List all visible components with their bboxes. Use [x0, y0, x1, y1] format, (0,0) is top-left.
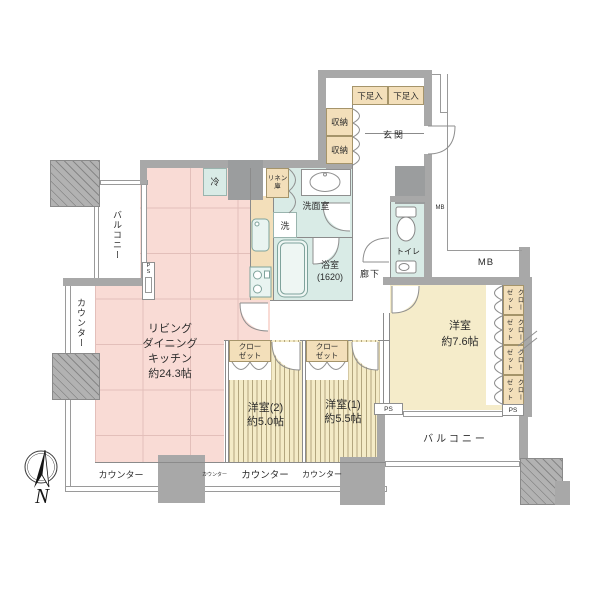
entrance-label: 玄関 [376, 128, 412, 141]
bath-label: 浴室 (1620) [303, 259, 357, 283]
kitchen-sink-icon [252, 219, 269, 251]
bedroom1-label: 洋室(1) 約5.5帖 [306, 398, 380, 426]
hall-label: 廊下 [356, 267, 384, 280]
counter-label: カウンター [241, 467, 289, 481]
refrigerator-label: 冷 [204, 175, 226, 188]
toilet-icon [396, 207, 416, 273]
ldk-label: リビング ダイニング キッチン 約24.3帖 [125, 322, 215, 382]
bedroom-main-label-line: 約7.6帖 [420, 334, 500, 350]
bedroom2-label-line: 約5.0帖 [229, 415, 302, 429]
compass-icon [25, 450, 57, 488]
fixtures-overlay [0, 0, 600, 600]
bedroom-main-label-line: 洋室 [420, 318, 500, 334]
counter-label: カウンター [96, 468, 146, 481]
floor-plan: 下足入 下足入 収納 収納 リネン 庫 洗 クロー ゼット クロー ゼット クロ… [0, 0, 600, 600]
stove-icon [250, 267, 271, 297]
bedroom-main-label: 洋室 約7.6帖 [420, 318, 500, 350]
ldk-label-line: ダイニング [125, 337, 215, 352]
bath-label-line: 浴室 [303, 259, 357, 271]
counter-label: カウンター [302, 469, 342, 480]
north-label: N [30, 484, 54, 509]
bath-label-line: (1620) [303, 271, 357, 283]
bedroom2-label: 洋室(2) 約5.0帖 [229, 401, 302, 429]
washbasin-icon [310, 173, 340, 192]
ldk-label-line: キッチン [125, 352, 215, 367]
break-marks [518, 331, 537, 353]
toilet-label: トイレ [394, 246, 422, 257]
ldk-label-line: リビング [125, 322, 215, 337]
balcony-bottom-label: バルコニー [418, 430, 493, 445]
bedroom1-label-line: 約5.5帖 [306, 412, 380, 426]
washroom-label: 洗面室 [294, 199, 338, 212]
counter-label-small: カウンター [202, 471, 226, 478]
bedroom1-label-line: 洋室(1) [306, 398, 380, 412]
folding-door-arcs [232, 109, 502, 404]
bedroom2-label-line: 洋室(2) [229, 401, 302, 415]
counter-left-label: カウンター [75, 295, 88, 351]
balcony-left-label: バルコニー [111, 205, 124, 265]
ldk-label-line: 約24.3帖 [125, 367, 215, 382]
